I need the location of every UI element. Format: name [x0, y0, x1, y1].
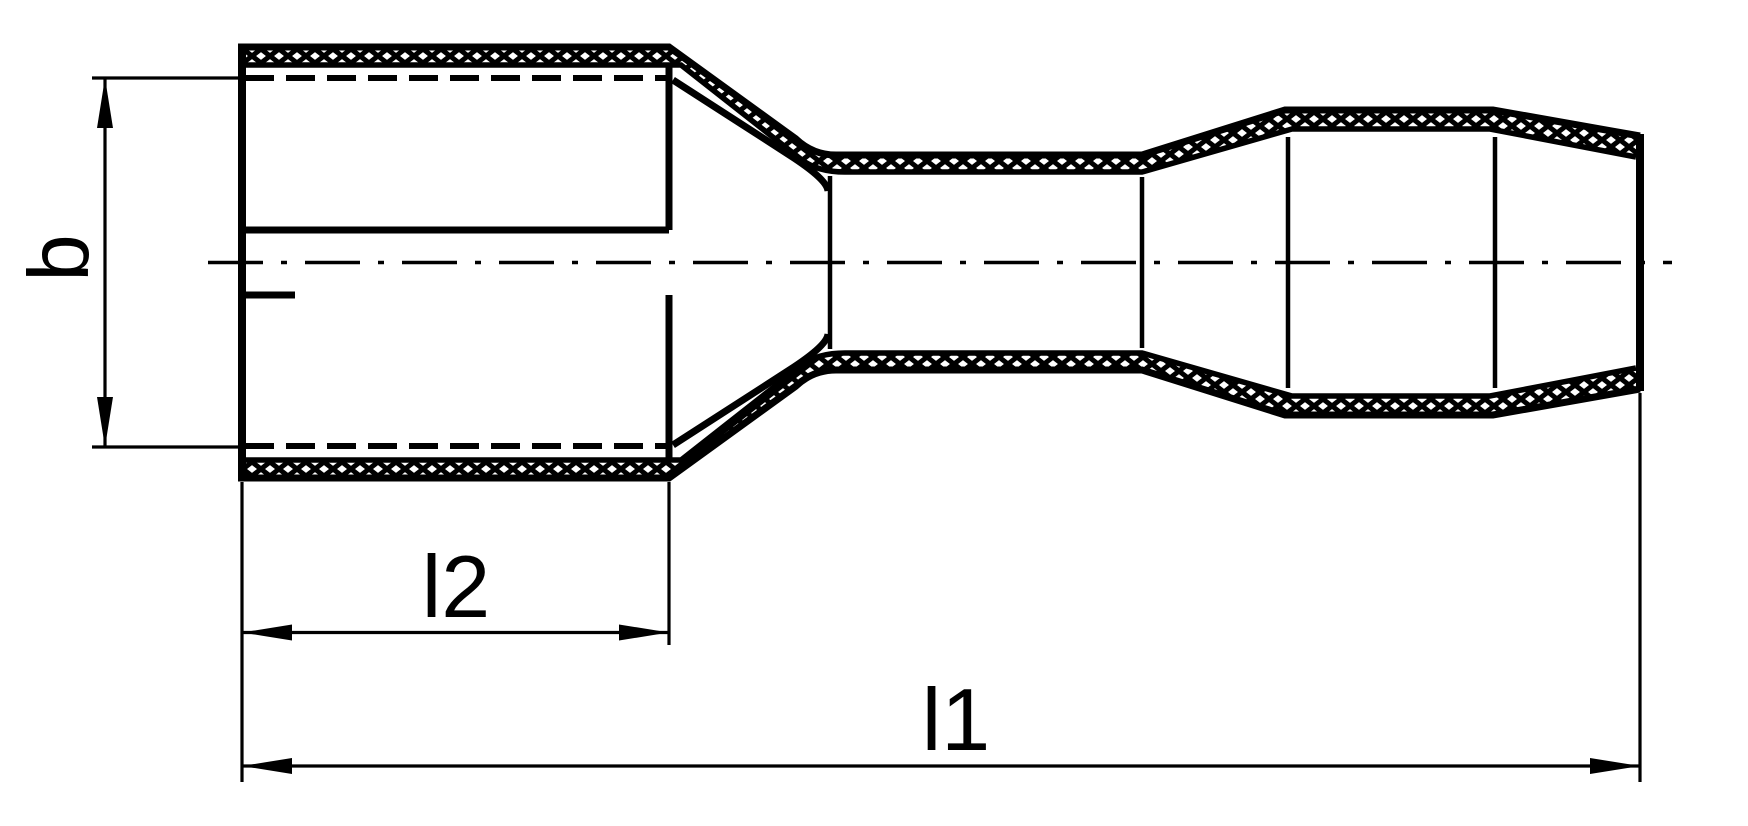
dimension-b: b — [12, 78, 242, 447]
funnel-edge-top — [673, 80, 828, 191]
label-l2: l2 — [422, 537, 491, 636]
arrowhead-b-bottom — [97, 397, 113, 447]
arrowhead-l1-right — [1590, 758, 1640, 774]
arrowhead-l1-left — [242, 758, 292, 774]
arrowhead-l2-right — [619, 625, 669, 641]
funnel-edge-bottom — [673, 334, 828, 445]
insulation-sleeve-top — [242, 47, 1640, 172]
terminal-connector-drawing: b l2 l1 — [0, 0, 1748, 826]
insulation-sleeve-bottom — [242, 353, 1640, 478]
label-l1: l1 — [922, 670, 991, 769]
arrowhead-b-top — [97, 78, 113, 128]
dimension-l2: l2 — [242, 482, 669, 782]
technical-drawing-page: b l2 l1 — [0, 0, 1748, 826]
label-b: b — [12, 234, 107, 281]
arrowhead-l2-left — [242, 625, 292, 641]
